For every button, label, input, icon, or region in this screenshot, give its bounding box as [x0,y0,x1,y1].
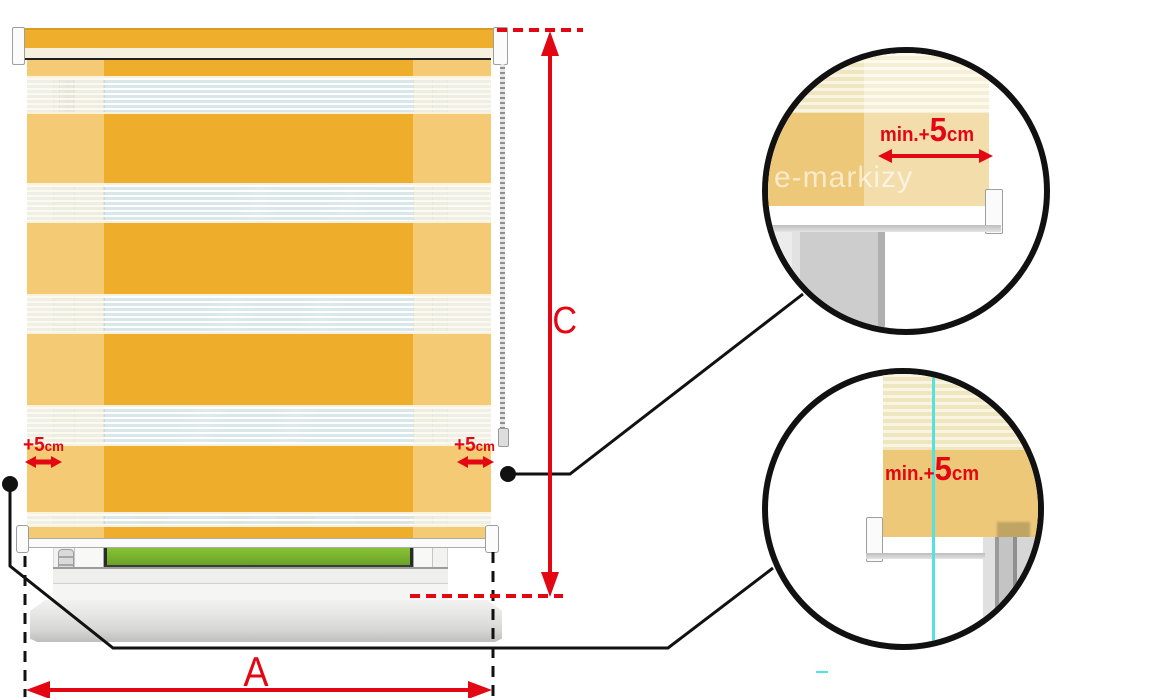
watermark: e-markizy [774,161,913,195]
width-dimension-label: A [243,648,268,696]
detail-frame-edge [866,553,985,559]
control-chain [500,64,505,430]
min-allowance-arrow [890,154,981,158]
blind-cassette [22,28,494,58]
detail-frame-bar [792,232,885,335]
bottom-rail-cap-left [16,525,29,553]
arrowhead-left-icon [878,149,892,163]
arrowhead-down-icon [541,572,559,597]
mounting-bracket-left [12,27,25,65]
fabric-band-yellow [27,60,491,76]
right-allowance-label: +5cm [454,434,495,457]
blind-bottom-rail [22,538,497,548]
fabric-band-sheer [27,294,491,334]
arrowhead-left-icon [26,681,50,698]
fabric-band-sheer [27,405,491,446]
min-allowance-label-bottom: min.+5cm [885,450,979,488]
callout-dot-left [2,476,18,492]
left-allowance-label: +5cm [23,434,64,457]
arrowhead-right-icon [979,149,993,163]
fabric-band-sheer [27,183,491,223]
height-dimension-label: C [552,300,577,343]
window-frame-bottom [53,567,448,602]
chain-connector [498,428,509,447]
detail-circle-bottom: min.+5cm [762,368,1044,650]
fabric-band-yellow [27,223,491,294]
detail-circle-side: e-markizy min.+5cm [762,47,1050,335]
blind-fabric [27,60,491,539]
detail-sheer-fabric [883,374,1044,450]
window-sill [30,600,502,642]
fabric-band-yellow [27,114,491,183]
fabric-band-yellow [27,334,491,405]
mounting-bracket-right [493,27,508,65]
fabric-band-yellow [27,446,491,512]
callout-dot-right [500,466,516,482]
diagram-stage: A C +5cm +5cm e-markizy min.+5cm min.+5c… [0,0,1150,698]
detail-frame-bar [983,537,1036,650]
arrowhead-right-icon [468,681,492,698]
fabric-band-sheer-landscape [27,512,491,527]
cyan-guide-line [932,374,935,650]
detail-wall [768,232,792,335]
fabric-band-sheer [27,76,491,114]
detail-frame-edge [768,225,1001,232]
min-allowance-label-top: min.+5cm [880,111,974,149]
arrowhead-up-icon [541,31,559,56]
cassette-shadow-line [24,58,491,60]
bottom-rail-cap-right [485,525,499,553]
